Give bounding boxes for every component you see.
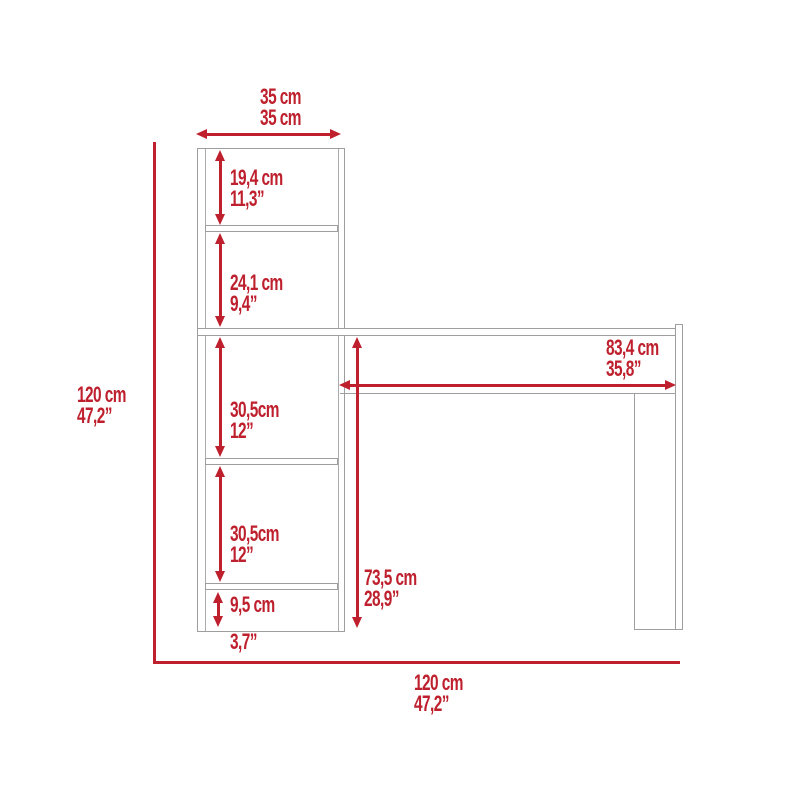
label-top-width-inch: 35 cm — [247, 107, 314, 128]
label-section-3-cm: 30,5cm — [230, 399, 279, 420]
label-section-3-inch: 12” — [230, 420, 279, 441]
label-overall-width-inch: 47,2” — [414, 693, 463, 714]
arrowhead-down-icon — [213, 616, 223, 627]
dimension-diagram: 35 cm 35 cm 120 cm 47,2” 120 cm 47,2” 19… — [0, 0, 800, 800]
label-desk-width-inch: 35,8” — [606, 358, 659, 379]
dim-line-section-1 — [219, 160, 222, 216]
label-section-2-inch: 9,4” — [230, 293, 283, 314]
label-section-5-inch: 3,7” — [230, 631, 257, 652]
label-section-4-cm: 30,5cm — [230, 523, 279, 544]
label-section-4-inch: 12” — [230, 544, 279, 565]
desk-leg-bottom-line — [634, 629, 675, 630]
arrowhead-down-icon — [215, 446, 225, 457]
desk-right-side-panel — [675, 324, 683, 630]
label-section-5-cm: 9,5 cm — [230, 594, 275, 615]
dim-line-section-4 — [219, 476, 222, 572]
label-section-2-cm: 24,1 cm — [230, 272, 283, 293]
label-desk-height-inch: 28,9” — [364, 588, 417, 609]
label-desk-height: 73,5 cm 28,9” — [364, 567, 417, 609]
label-top-width-cm: 35 cm — [247, 86, 314, 107]
label-overall-height: 120 cm 47,2” — [77, 384, 126, 426]
dim-line-overall-height — [153, 142, 156, 664]
dim-line-overall-width — [153, 661, 680, 664]
arrowhead-left-icon — [196, 129, 207, 139]
arrowhead-down-icon — [215, 316, 225, 327]
label-desk-width: 83,4 cm 35,8” — [606, 337, 659, 379]
label-section-1-inch: 11,3” — [230, 188, 283, 209]
label-section-2: 24,1 cm 9,4” — [230, 272, 283, 314]
bookcase-shelf-board-3 — [205, 583, 338, 590]
bookcase-shelf-board-1 — [205, 225, 338, 232]
dim-line-desk-height — [356, 347, 359, 619]
label-section-4: 30,5cm 12” — [230, 523, 279, 565]
desk-leg-inner-line — [634, 394, 635, 630]
label-overall-height-cm: 120 cm — [77, 384, 126, 405]
bookcase-inner-right-panel-line — [338, 149, 339, 631]
label-desk-width-cm: 83,4 cm — [606, 337, 659, 358]
arrowhead-down-icon — [352, 617, 362, 628]
dim-line-section-2 — [219, 243, 222, 317]
arrowhead-down-icon — [215, 214, 225, 225]
label-section-1: 19,4 cm 11,3” — [230, 167, 283, 209]
label-top-width: 35 cm 35 cm — [247, 86, 314, 128]
label-section-3: 30,5cm 12” — [230, 399, 279, 441]
arrowhead-right-icon — [330, 129, 341, 139]
label-desk-height-cm: 73,5 cm — [364, 567, 417, 588]
label-overall-height-inch: 47,2” — [77, 405, 126, 426]
bookcase-inner-left-panel-line — [205, 149, 206, 631]
arrowhead-down-icon — [215, 571, 225, 582]
label-section-1-cm: 19,4 cm — [230, 167, 283, 188]
arrowhead-right-icon — [665, 380, 676, 390]
dim-line-top-width — [206, 133, 334, 136]
dim-line-desk-width — [349, 384, 666, 387]
label-overall-width: 120 cm 47,2” — [414, 672, 463, 714]
bookcase-shelf-board-2 — [205, 458, 338, 465]
dim-line-section-3 — [219, 347, 222, 447]
label-overall-width-cm: 120 cm — [414, 672, 463, 693]
desk-apron-line — [340, 393, 675, 394]
